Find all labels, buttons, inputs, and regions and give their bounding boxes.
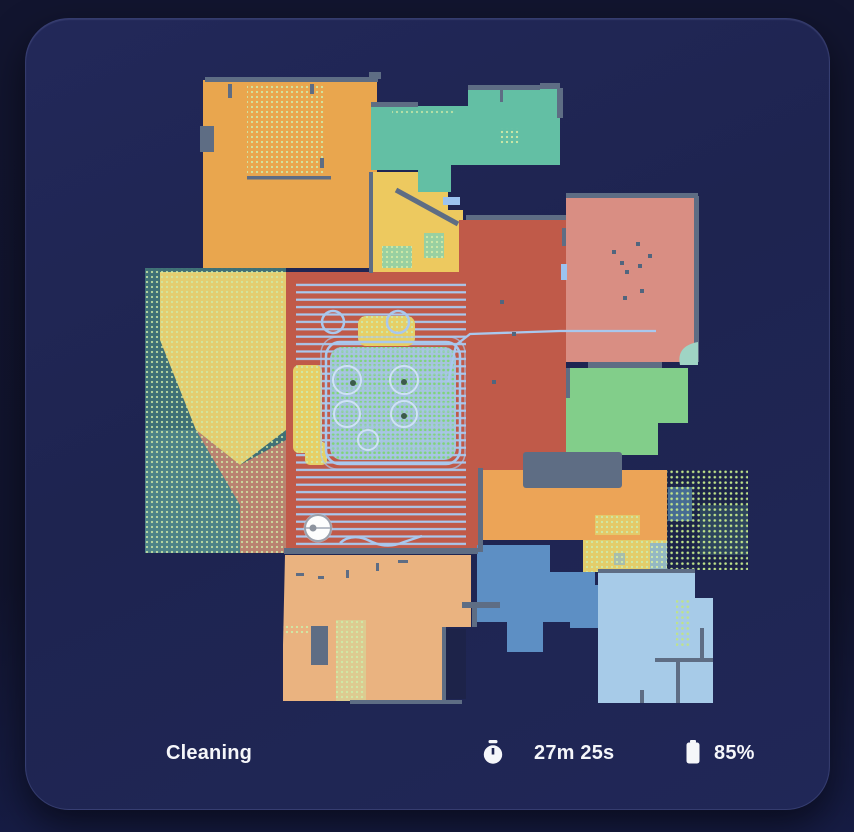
carpet-zone-right [667, 470, 748, 570]
robot-marker [304, 514, 333, 543]
carpet-zone-left [145, 268, 286, 553]
carpet-orange-room [247, 85, 331, 180]
room-blue-mid-annex[interactable] [570, 585, 598, 628]
room-light-blue[interactable] [598, 573, 713, 703]
carpet-dots-lightblue [676, 600, 690, 648]
carpet-strip-yellow [583, 540, 667, 572]
rug-center [321, 337, 465, 469]
closet-void [446, 629, 466, 699]
room-pink-right[interactable] [566, 196, 698, 362]
vacuum-map[interactable] [0, 0, 854, 832]
app-screen: Cleaning 27m 25s 85% [0, 0, 854, 832]
